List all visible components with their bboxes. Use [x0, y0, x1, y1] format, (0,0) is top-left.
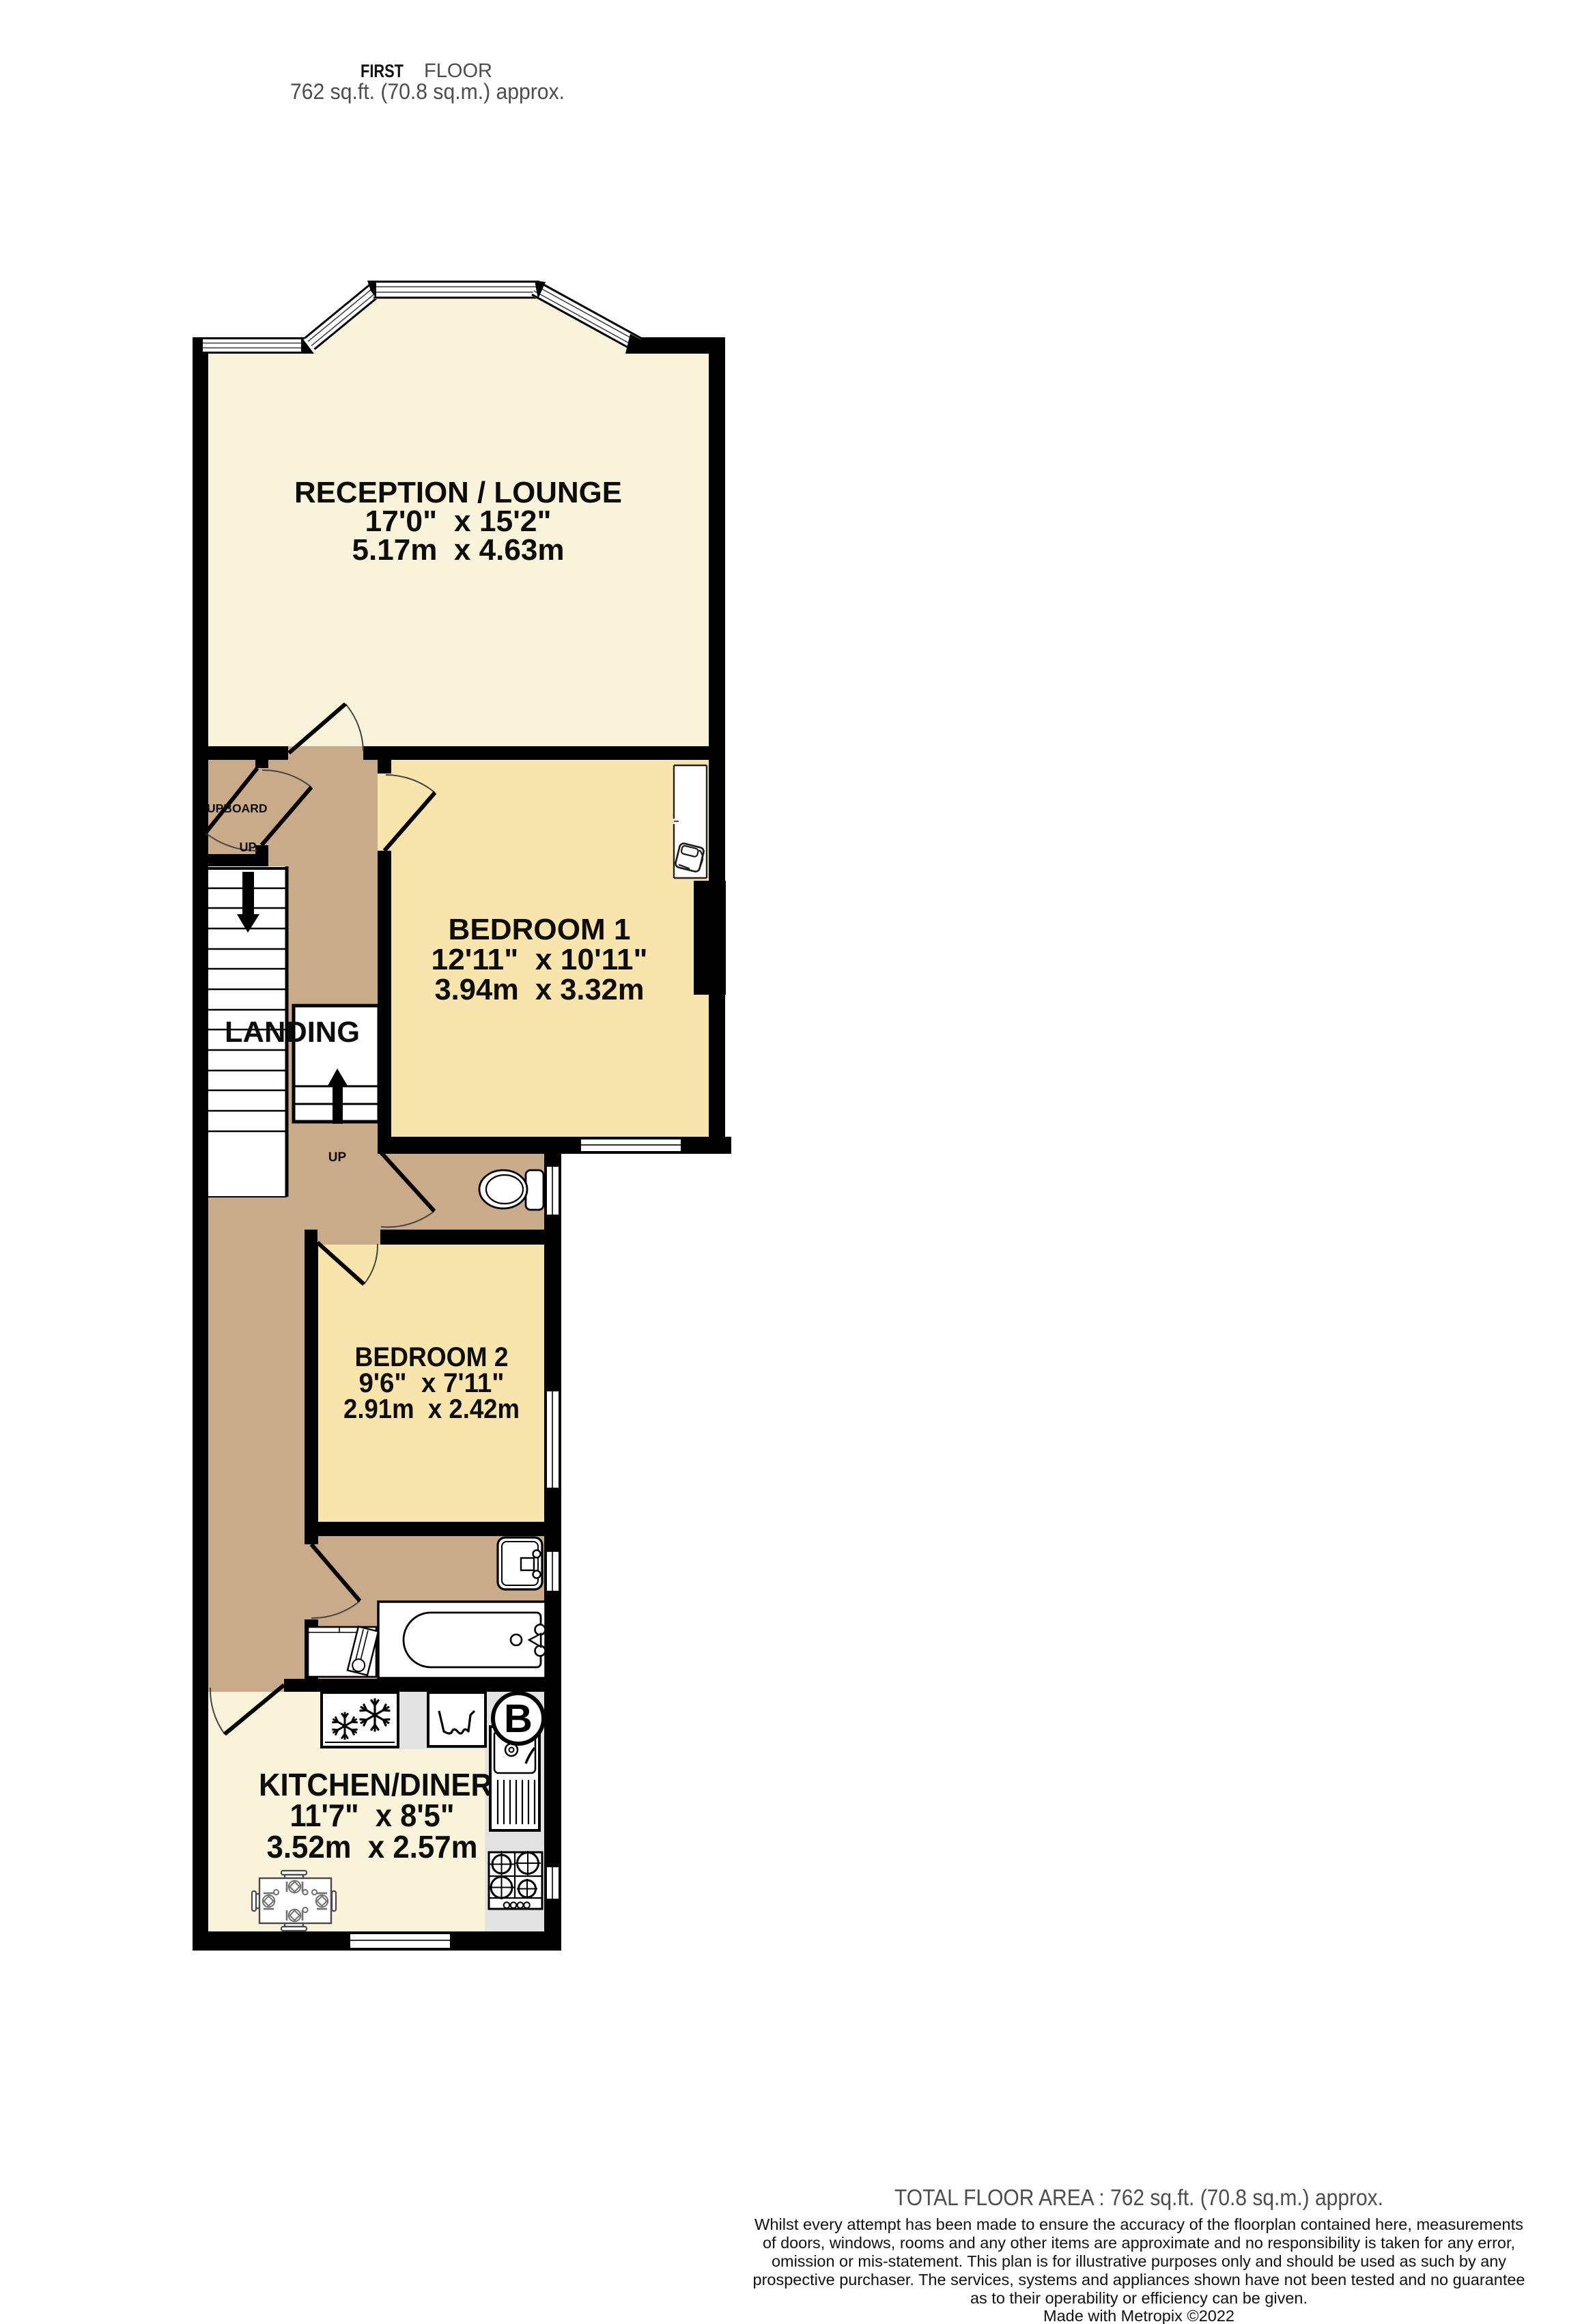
svg-text:11'7" x 8'5": 11'7" x 8'5" [290, 1798, 455, 1833]
svg-text:of doors, windows, rooms and a: of doors, windows, rooms and any other i… [763, 2234, 1515, 2252]
svg-text:5.17m x 4.63m: 5.17m x 4.63m [352, 533, 565, 567]
svg-text:2.91m x 2.42m: 2.91m x 2.42m [343, 1394, 520, 1424]
svg-text:LANDING: LANDING [225, 1016, 360, 1049]
svg-text:BEDROOM 1: BEDROOM 1 [449, 913, 631, 946]
svg-text:Made with Metropix ©2022: Made with Metropix ©2022 [1043, 2307, 1234, 2324]
svg-text:Whilst every attempt has been: Whilst every attempt has been made to en… [754, 2215, 1523, 2233]
svg-text:prospective purchaser. The ser: prospective purchaser. The services, sys… [753, 2271, 1525, 2288]
svg-text:3.94m x 3.32m: 3.94m x 3.32m [435, 973, 645, 1006]
svg-text:UPBOARD: UPBOARD [207, 802, 267, 815]
svg-text:as to their operability or eff: as to their operability or efficiency ca… [970, 2289, 1308, 2307]
svg-text:UP: UP [328, 1150, 347, 1165]
svg-text:omission or mis-statement. Thi: omission or mis-statement. This plan is … [772, 2252, 1507, 2270]
svg-text:762 sq.ft. (70.8 sq.m.) approx: 762 sq.ft. (70.8 sq.m.) approx. [290, 79, 565, 104]
svg-text:12'11" x 10'11": 12'11" x 10'11" [432, 943, 648, 976]
svg-text:UP: UP [239, 840, 256, 854]
svg-text:FIRST: FIRST [361, 61, 404, 81]
svg-text:3.52m x 2.57m: 3.52m x 2.57m [267, 1829, 478, 1865]
svg-text:B: B [504, 1697, 533, 1741]
svg-text:TOTAL FLOOR AREA : 762 sq.ft.: TOTAL FLOOR AREA : 762 sq.ft. (70.8 sq.m… [894, 2185, 1383, 2210]
